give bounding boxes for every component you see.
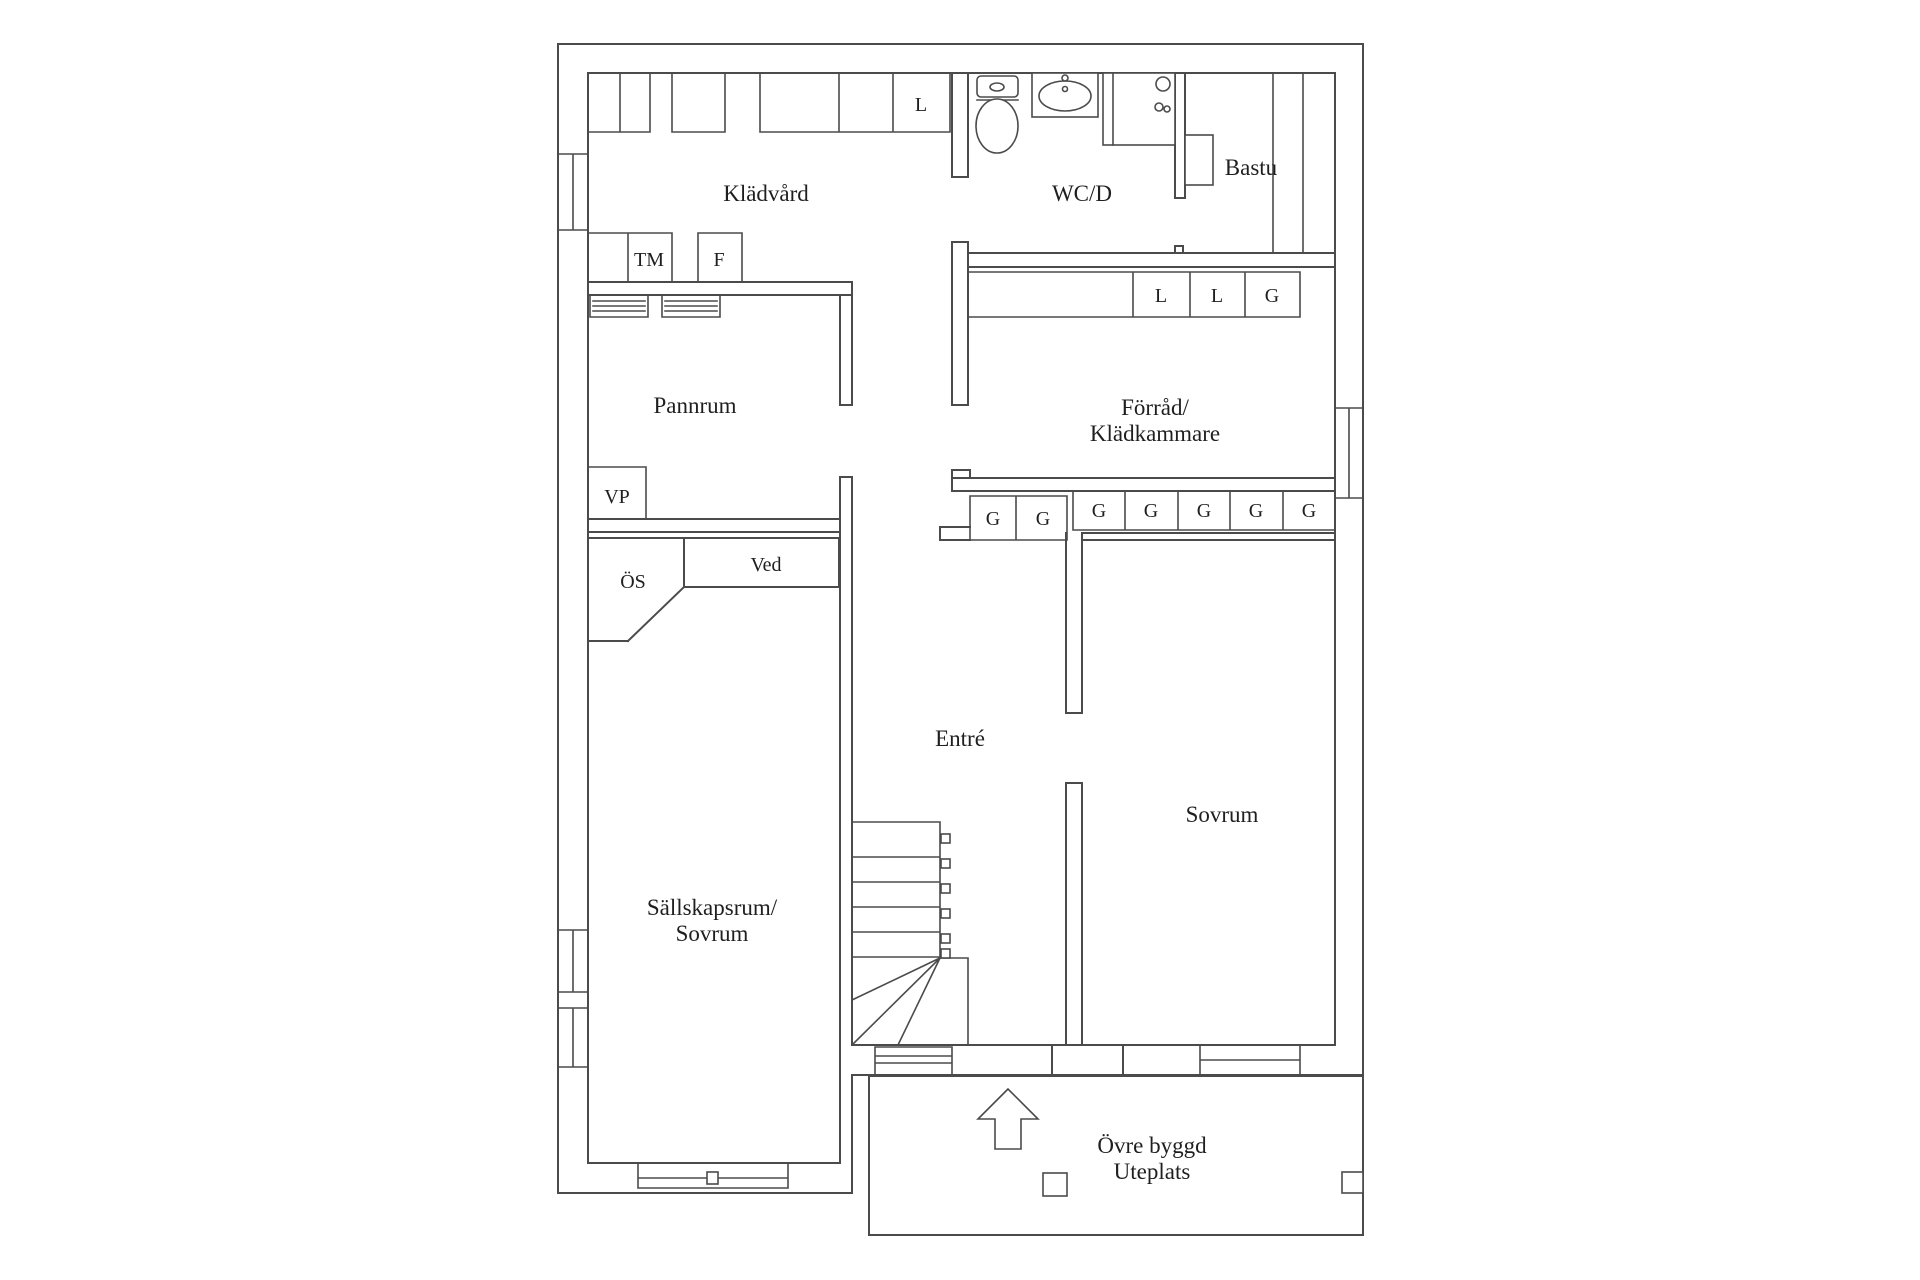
room-label-laundry: Klädvård [723,181,809,206]
entry-bedroom-wall [1052,533,1123,1075]
room-label-lounge-line1: Sällskapsrum/ [647,895,778,920]
window-lounge-west-2 [558,1008,588,1067]
room-label-wc: WC/D [1052,181,1112,206]
storage-closets-upper [968,272,1300,317]
exterior-walls [558,44,1363,1193]
closet-row [968,272,1300,317]
window-lounge-west-1 [558,930,588,992]
room-label-terrace-line2: Uteplats [1114,1159,1191,1184]
boiler-south-wall [588,519,840,532]
label-flue: ÖS [620,570,646,593]
label-freezer: F [713,249,724,271]
label-wardrobe: G [1265,285,1279,307]
radiators [590,295,720,317]
label-washer: TM [634,249,664,271]
radiator-icon [590,295,648,317]
cabinet-run [588,73,950,132]
wardrobe-row-two [970,496,1067,540]
entry-ne-stub [940,527,970,540]
label-wardrobe: G [1036,508,1050,530]
room-label-bedroom: Sovrum [1186,802,1259,827]
stair-nosing [941,859,950,868]
label-linen-closet: L [1155,285,1167,307]
closet-row [970,496,1067,540]
window-handle [707,1172,718,1184]
storage-south-wall [952,470,1335,491]
room-label-storage-line1: Förråd/ [1121,395,1189,420]
label-wardrobe: G [1144,500,1158,522]
shower-icon [1103,73,1175,145]
room-label-entry: Entré [935,726,985,751]
exterior-inner-wall [588,73,1335,1163]
toilet-icon [976,76,1018,153]
label-wood: Ved [750,554,781,576]
stair-nosing [941,949,950,958]
sauna-bench-lines [1273,73,1303,253]
label-wardrobe: G [1092,500,1106,522]
stair-nosing [941,834,950,843]
stair-nosing [941,934,950,943]
room-label-lounge-line2: Sovrum [676,921,749,946]
stair-nosing [941,884,950,893]
staircase [852,822,968,1075]
windows [558,154,1363,1188]
laundry-boiler-wall [588,282,852,295]
wc-sauna-wall [1175,73,1185,198]
north-arrow-icon [978,1089,1038,1149]
window-storage-east [1335,408,1363,498]
stair-nosing [941,909,950,918]
terrace-hatch [1043,1173,1067,1196]
label-wardrobe: G [986,508,1000,530]
room-labels: Klädvård WC/D Bastu Pannrum Förråd/ Kläd… [647,155,1278,1184]
window-laundry-west [558,154,588,230]
label-linen-closet: L [1211,285,1223,307]
lounge-east-wall [840,295,852,1163]
exterior-outer-wall [558,44,1363,1193]
label-linen-closet: L [915,94,927,116]
window-bedroom-south [1200,1045,1300,1075]
laundry-east-wall [952,73,968,405]
room-label-boiler: Pannrum [653,393,736,418]
storage-north-wall [968,246,1335,267]
room-label-storage-line2: Klädkammare [1090,421,1220,446]
sink-icon [1032,73,1098,117]
interior-walls [588,73,1335,1163]
label-heat-pump: VP [604,486,630,508]
label-wardrobe: G [1302,500,1316,522]
radiator-icon [662,295,720,317]
terrace-post [1342,1172,1363,1193]
label-wardrobe: G [1197,500,1211,522]
room-label-sauna: Bastu [1225,155,1278,180]
bedroom-north-wall [1082,533,1335,540]
room-label-terrace-line1: Övre byggd [1097,1133,1207,1158]
sauna-heater-icon [1185,135,1213,185]
label-wardrobe: G [1249,500,1263,522]
laundry-cabinets [588,73,950,132]
floor-plan: Klädvård WC/D Bastu Pannrum Förråd/ Kläd… [0,0,1920,1280]
entrance-threshold [875,1047,952,1075]
